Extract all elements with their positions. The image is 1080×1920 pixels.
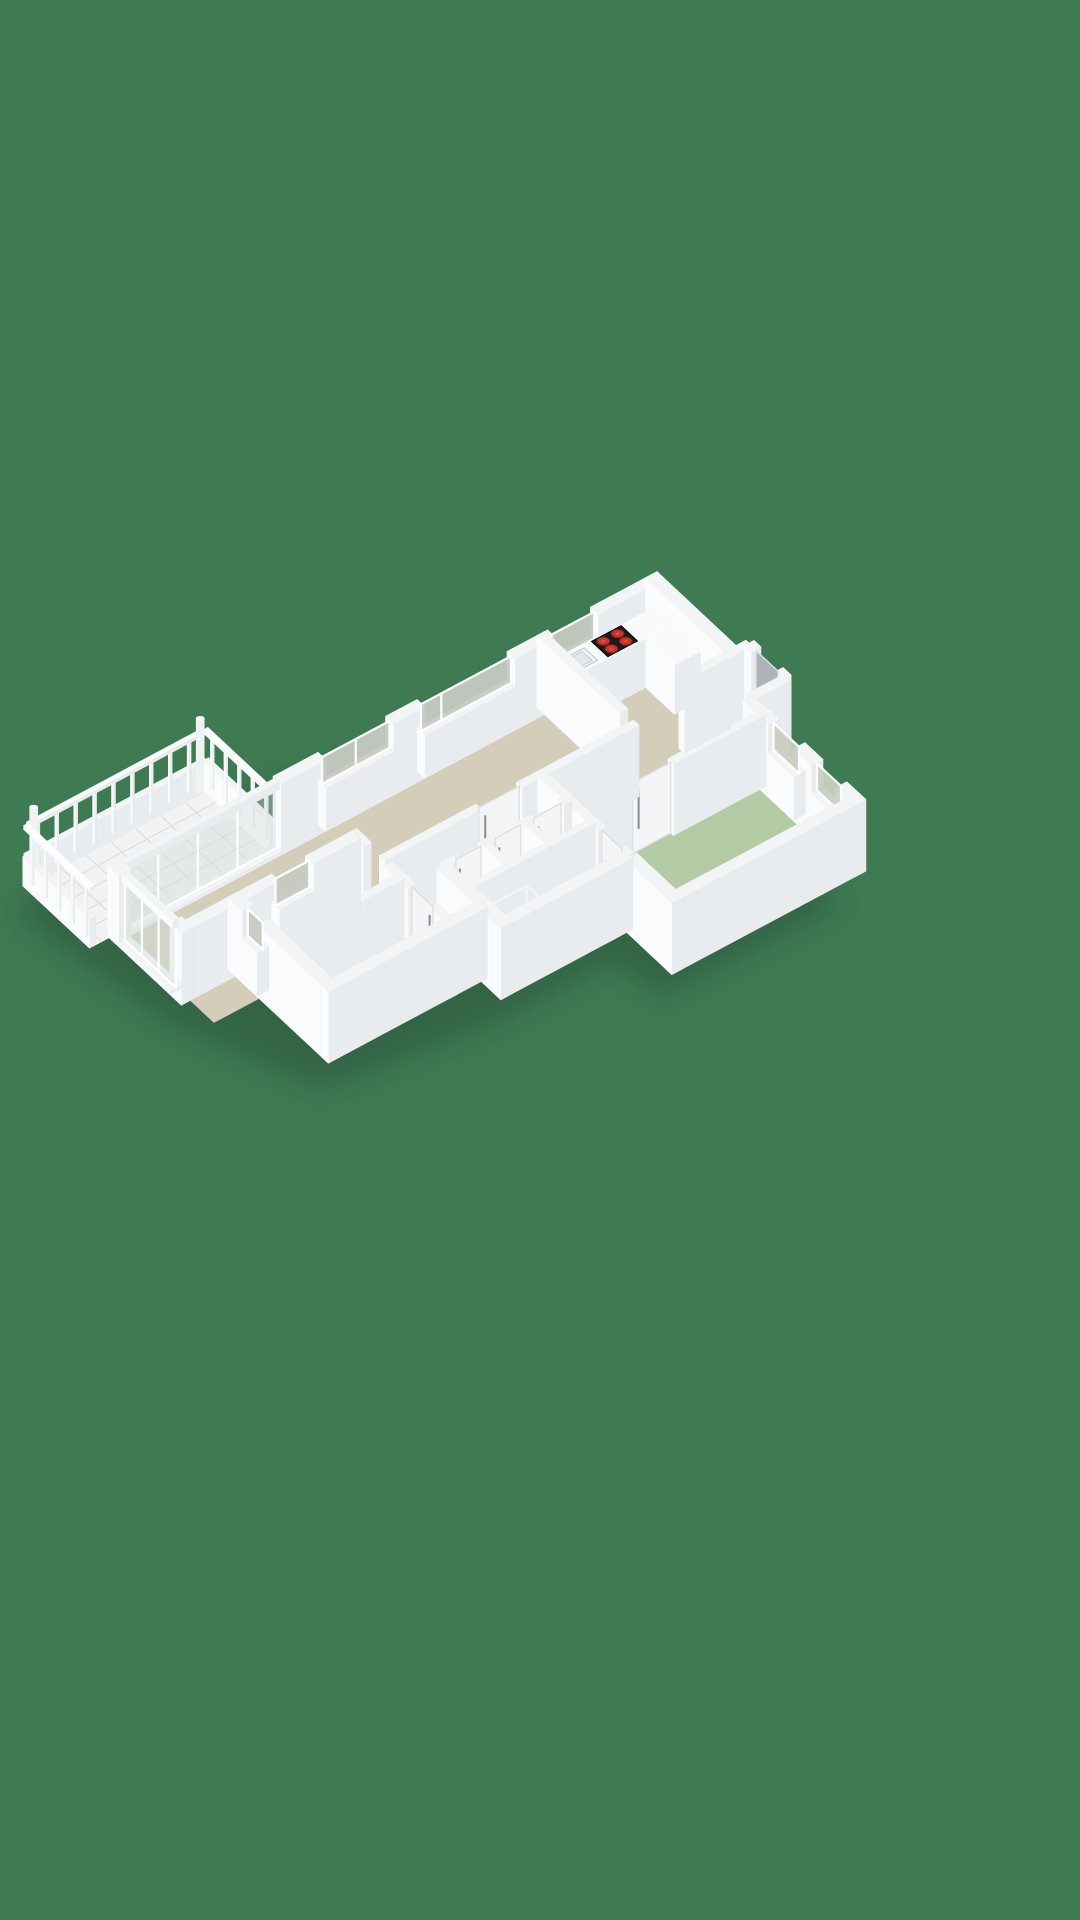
floor-plan-3d-render: [0, 0, 1080, 1920]
scene-viewport: [0, 0, 1080, 1920]
balcony-post-west: [196, 716, 205, 793]
